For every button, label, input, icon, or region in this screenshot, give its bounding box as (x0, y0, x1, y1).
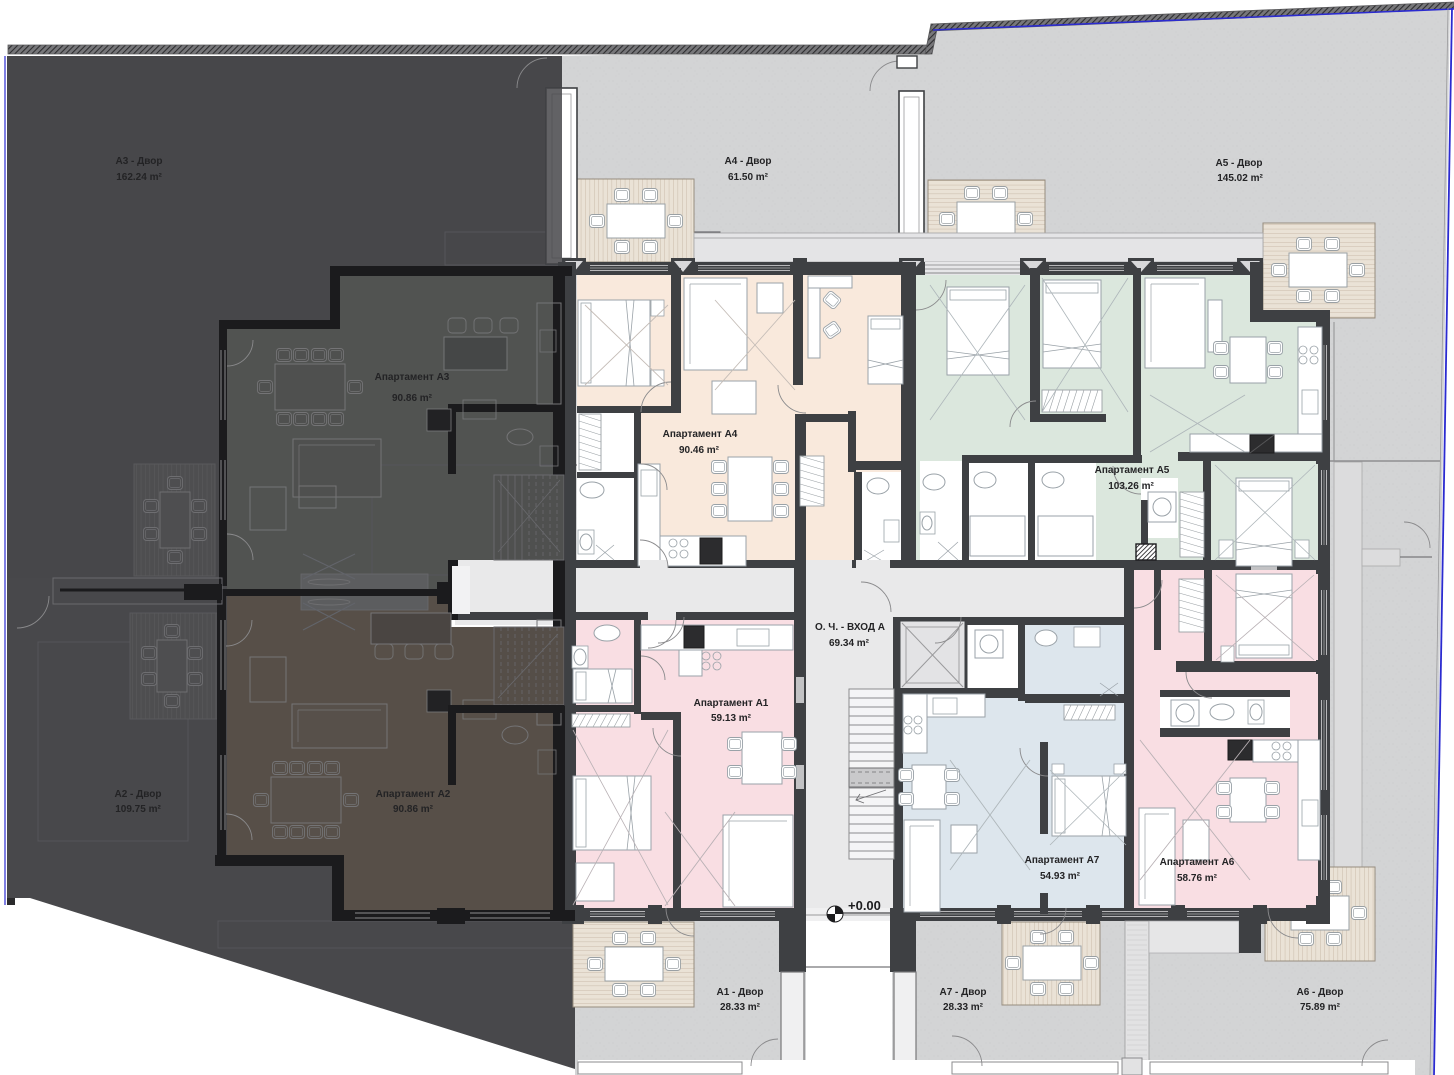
svg-text:90.86 m²: 90.86 m² (392, 393, 433, 404)
svg-text:О. Ч. - ВХОД А: О. Ч. - ВХОД А (815, 622, 885, 633)
svg-text:103.26 m²: 103.26 m² (1108, 481, 1154, 492)
svg-text:A7 - Двор: A7 - Двор (939, 987, 986, 998)
svg-text:Апартамент А3: Апартамент А3 (375, 372, 450, 383)
svg-text:+0.00: +0.00 (848, 898, 881, 913)
svg-text:162.24 m²: 162.24 m² (116, 172, 162, 183)
svg-text:28.33 m²: 28.33 m² (943, 1002, 984, 1013)
svg-text:A2 - Двор: A2 - Двор (114, 789, 161, 800)
svg-text:145.02 m²: 145.02 m² (1217, 173, 1263, 184)
svg-text:75.89 m²: 75.89 m² (1300, 1002, 1341, 1013)
svg-text:A4 - Двор: A4 - Двор (724, 156, 771, 167)
svg-text:A3 - Двор: A3 - Двор (115, 156, 162, 167)
svg-text:A6 - Двор: A6 - Двор (1296, 987, 1343, 998)
svg-text:90.46 m²: 90.46 m² (679, 445, 720, 456)
svg-text:58.76 m²: 58.76 m² (1177, 873, 1218, 884)
svg-text:59.13 m²: 59.13 m² (711, 713, 752, 724)
svg-text:Апартамент А1: Апартамент А1 (694, 698, 769, 709)
svg-text:Апартамент А5: Апартамент А5 (1095, 465, 1170, 476)
svg-text:Апартамент А2: Апартамент А2 (376, 789, 451, 800)
svg-text:54.93 m²: 54.93 m² (1040, 871, 1081, 882)
svg-text:109.75 m²: 109.75 m² (115, 804, 161, 815)
svg-text:Апартамент А6: Апартамент А6 (1160, 857, 1235, 868)
svg-text:Апартамент А4: Апартамент А4 (663, 429, 738, 440)
svg-text:28.33 m²: 28.33 m² (720, 1002, 761, 1013)
svg-text:A5 - Двор: A5 - Двор (1215, 158, 1262, 169)
svg-text:69.34 m²: 69.34 m² (829, 638, 870, 649)
svg-text:Апартамент А7: Апартамент А7 (1025, 855, 1100, 866)
svg-text:A1 - Двор: A1 - Двор (716, 987, 763, 998)
svg-text:90.86 m²: 90.86 m² (393, 804, 434, 815)
svg-text:61.50 m²: 61.50 m² (728, 172, 769, 183)
